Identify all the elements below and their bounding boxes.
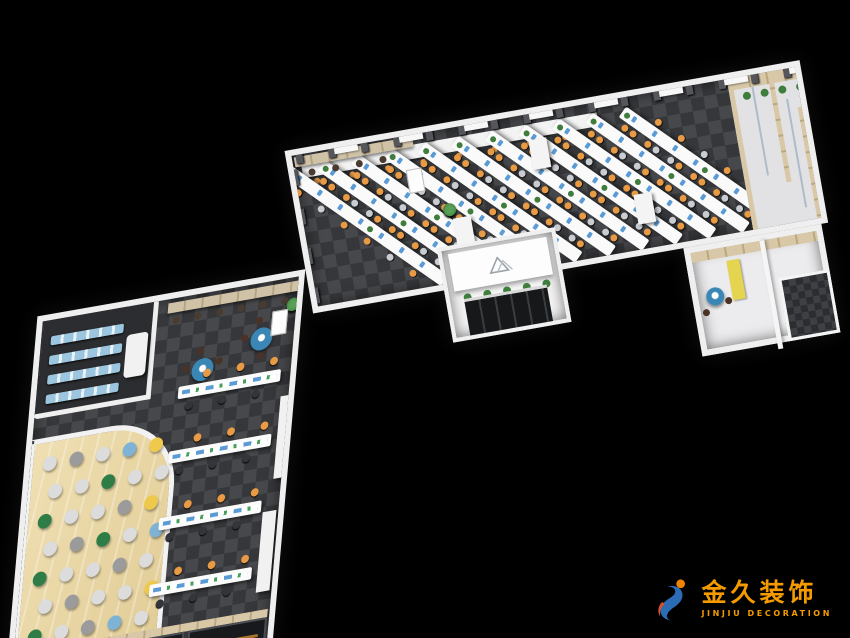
office-chair-icon — [498, 185, 508, 195]
plant-icon — [701, 166, 709, 174]
meeting-table — [195, 634, 258, 638]
office-chair-icon — [293, 188, 303, 198]
office-chair-icon — [193, 433, 202, 443]
monitor-icon — [497, 139, 504, 146]
monitor-icon — [672, 145, 679, 152]
plant-icon — [742, 91, 751, 100]
chair-icon — [725, 297, 733, 305]
entrance-lobby — [437, 227, 572, 342]
office-chair-icon — [442, 175, 452, 185]
chair-icon — [175, 465, 184, 475]
chair-icon — [189, 593, 198, 603]
office-chair-icon — [408, 268, 418, 278]
break-table — [705, 286, 726, 307]
monitor-icon — [612, 191, 619, 198]
office-chair-icon — [342, 193, 352, 203]
office-building-plan — [120, 58, 850, 638]
monitor-icon — [571, 162, 578, 169]
facade-panel — [463, 116, 489, 131]
office-chair-icon — [339, 220, 349, 230]
training-seat-row — [50, 323, 124, 345]
monitor-icon — [666, 199, 673, 206]
monitor-icon — [424, 206, 431, 213]
chair-icon — [241, 334, 249, 342]
desk-row — [168, 434, 272, 464]
monitor-icon — [450, 166, 457, 173]
office-chair-icon — [465, 191, 475, 201]
monitor-icon — [733, 188, 740, 195]
bar-stool-icon — [194, 312, 202, 320]
monitor-icon — [692, 159, 699, 166]
office-chair-icon — [236, 362, 245, 372]
glass-partition — [751, 87, 769, 176]
office-chair-icon — [250, 488, 259, 498]
monitor-icon — [504, 174, 511, 181]
office-chair-icon — [609, 145, 619, 155]
monitor-icon — [378, 232, 385, 239]
office-chair-icon — [599, 167, 609, 177]
office-chair-icon — [432, 197, 442, 207]
monitor-icon — [391, 212, 398, 219]
bar-stool-icon — [216, 308, 224, 316]
office-chair-icon — [712, 188, 722, 198]
office-chair-icon — [576, 151, 586, 161]
utility-room — [778, 269, 840, 341]
facade-column — [297, 209, 307, 226]
chair-icon — [199, 526, 208, 536]
office-chair-icon — [319, 177, 329, 187]
monitor-icon — [357, 218, 364, 225]
plant-icon — [455, 141, 463, 149]
facade-beam — [7, 350, 43, 359]
fridge-icon — [270, 309, 288, 337]
plant-icon — [522, 129, 530, 137]
office-chair-icon — [386, 165, 396, 175]
monitor-icon — [625, 171, 632, 178]
monitor-icon — [316, 189, 323, 196]
office-chair-icon — [398, 203, 408, 213]
facade-column — [424, 124, 434, 141]
office-chair-icon — [217, 493, 226, 503]
plant-icon — [795, 82, 804, 91]
office-chair-icon — [521, 201, 531, 211]
facade-column — [294, 147, 304, 164]
bar-stool-icon — [238, 304, 246, 312]
office-chair-icon — [476, 169, 486, 179]
monitor-icon — [337, 204, 344, 211]
office-chair-icon — [735, 204, 745, 214]
monitor-icon — [551, 148, 558, 155]
office-chair-icon — [270, 356, 279, 366]
facade-column — [749, 67, 759, 84]
facade-beam — [4, 441, 34, 450]
monitor-icon — [363, 163, 370, 170]
monitor-icon — [445, 220, 452, 227]
monitor-icon — [419, 261, 426, 268]
facade-panel — [658, 82, 684, 97]
lounge-bar-counter — [168, 281, 299, 314]
plant-icon — [589, 117, 597, 125]
office-chair-icon — [385, 252, 395, 262]
monitor-icon — [437, 186, 444, 193]
meeting-rooms — [727, 65, 828, 242]
monitor-icon — [679, 179, 686, 186]
plant-icon — [778, 85, 787, 94]
office-chair-icon — [587, 129, 597, 139]
office-chair-icon — [260, 421, 269, 431]
training-seat-rows — [43, 302, 154, 322]
chair-icon — [256, 316, 264, 324]
bar-stool-icon — [173, 316, 181, 324]
monitor-icon — [599, 211, 606, 218]
facade-column — [684, 78, 694, 95]
plant-icon — [567, 190, 575, 198]
monitor-icon — [597, 122, 604, 129]
chair-icon — [218, 395, 227, 405]
partition-wall — [256, 510, 277, 593]
facade-panel — [788, 60, 814, 74]
plant-icon — [489, 135, 497, 143]
monitor-icon — [586, 231, 593, 238]
monitor-icon — [605, 156, 612, 163]
monitor-icon — [579, 197, 586, 204]
monitor-icon — [512, 209, 519, 216]
monitor-icon — [713, 173, 720, 180]
office-chair-icon — [316, 204, 326, 214]
podium — [123, 331, 148, 378]
chair-icon — [257, 352, 265, 360]
monitor-icon — [638, 150, 645, 157]
office-chair-icon — [352, 171, 362, 181]
office-chair-icon — [207, 560, 216, 570]
facade-column — [359, 136, 369, 153]
bar-stool-icon — [259, 300, 267, 308]
office-chair-icon — [444, 235, 454, 245]
plant-icon — [466, 207, 474, 215]
chair-icon — [165, 532, 174, 542]
chair-icon — [197, 347, 205, 355]
office-chair-icon — [632, 161, 642, 171]
monitor-icon — [411, 226, 418, 233]
facade-column — [489, 113, 499, 130]
facade-panel — [593, 93, 619, 108]
desk-row — [158, 500, 262, 530]
plant-icon — [388, 153, 396, 161]
office-chair-icon — [509, 163, 519, 173]
monitor-icon — [430, 151, 437, 158]
watermark-text: 金久装饰 JINJIU DECORATION — [701, 580, 832, 618]
inner-wall — [759, 240, 783, 349]
brand-name-en: JINJIU DECORATION — [701, 609, 832, 618]
facade-panel — [398, 128, 424, 143]
desk-equipment — [172, 438, 267, 459]
facade-beam — [5, 373, 41, 382]
facade-beam — [4, 418, 36, 427]
training-seat-row — [45, 382, 119, 404]
plant-icon — [600, 184, 608, 192]
plant-icon — [422, 147, 430, 155]
chair-icon — [702, 309, 710, 317]
brand-name-cn: 金久装饰 — [701, 580, 832, 606]
right-wing — [683, 224, 840, 357]
desk-equipment — [153, 572, 248, 593]
monitor-icon — [458, 200, 465, 207]
office-chair-icon — [227, 427, 236, 437]
plant-icon — [399, 219, 407, 227]
training-seat-row — [47, 363, 121, 385]
facade-column — [554, 101, 564, 118]
office-chair-icon — [578, 211, 588, 221]
office-chair-icon — [174, 566, 183, 576]
monitor-icon — [545, 203, 552, 210]
monitor-icon — [631, 116, 638, 123]
training-seat-row — [49, 343, 123, 365]
chair-icon — [184, 401, 193, 411]
mountain-logo-icon — [486, 253, 515, 275]
monitor-icon — [463, 145, 470, 152]
plant-icon — [366, 225, 374, 233]
chair-icon — [232, 520, 241, 530]
office-chair-icon — [511, 223, 521, 233]
monitor-icon — [687, 214, 694, 221]
monitor-icon — [659, 165, 666, 172]
glass-partition — [786, 99, 807, 208]
lounge-table — [250, 326, 274, 353]
office-chair-icon — [183, 499, 192, 509]
office-chair-icon — [567, 233, 577, 243]
chair-icon — [242, 454, 251, 464]
company-watermark: 金久装饰 JINJIU DECORATION — [655, 576, 832, 622]
plant-icon — [623, 112, 631, 120]
partition-wall — [769, 83, 791, 182]
office-chair-icon — [488, 207, 498, 217]
render-canvas: 金久装饰 JINJIU DECORATION — [0, 0, 850, 638]
office-chair-icon — [701, 210, 711, 220]
facade-column — [311, 287, 321, 304]
lower-wing — [4, 269, 305, 638]
office-chair-icon — [410, 241, 420, 251]
monitor-icon — [566, 217, 573, 224]
office-chair-icon — [362, 236, 372, 246]
monitor-icon — [370, 198, 377, 205]
monitor-icon — [538, 168, 545, 175]
yellow-accent-wall — [726, 259, 746, 301]
plant-icon — [760, 88, 769, 97]
plant-icon — [433, 213, 441, 221]
office-chair-icon — [532, 179, 542, 189]
monitor-icon — [618, 136, 625, 143]
office-chair-icon — [676, 134, 686, 144]
office-chair-icon — [668, 216, 678, 226]
monitor-icon — [517, 154, 524, 161]
monitor-icon — [525, 188, 532, 195]
office-chair-icon — [565, 173, 575, 183]
office-chair-icon — [722, 166, 732, 176]
office-chair-icon — [689, 172, 699, 182]
office-chair-icon — [588, 189, 598, 199]
monitor-icon — [720, 208, 727, 215]
plant-icon — [667, 172, 675, 180]
monitor-icon — [564, 128, 571, 135]
office-chair-icon — [699, 150, 709, 160]
monitor-icon — [620, 226, 627, 233]
plant-icon — [533, 196, 541, 204]
office-chair-icon — [643, 139, 653, 149]
chair-icon — [251, 389, 260, 399]
plant-icon — [634, 178, 642, 186]
office-chair-icon — [477, 229, 487, 239]
office-chair-icon — [375, 187, 385, 197]
office-chair-icon — [622, 183, 632, 193]
monitor-icon — [558, 182, 565, 189]
office-chair-icon — [654, 117, 664, 127]
desk-equipment — [163, 505, 258, 526]
chair-icon — [208, 459, 217, 469]
office-chair-icon — [365, 209, 375, 219]
chair-icon — [215, 357, 223, 365]
office-chair-icon — [678, 194, 688, 204]
monitor-icon — [584, 142, 591, 149]
monitor-icon — [700, 193, 707, 200]
chair-icon — [222, 587, 231, 597]
plant-icon — [556, 123, 564, 131]
office-chair-icon — [655, 177, 665, 187]
monitor-icon — [398, 247, 405, 254]
monitor-icon — [350, 183, 357, 190]
plant-icon — [322, 165, 330, 173]
office-chair-icon — [421, 219, 431, 229]
facade-beam — [9, 327, 45, 336]
office-chair-icon — [387, 225, 397, 235]
office-chair-icon — [555, 195, 565, 205]
monitor-icon — [478, 215, 485, 222]
partition-wall — [273, 394, 294, 479]
office-chair-icon — [203, 368, 212, 378]
facade-column — [619, 90, 629, 107]
monitor-icon — [396, 157, 403, 164]
office-chair-icon — [601, 227, 611, 237]
partition-wall — [798, 106, 825, 230]
office-chair-icon — [544, 217, 554, 227]
training-room — [34, 301, 159, 419]
jinjiu-logo-icon — [655, 576, 693, 622]
office-chair-icon — [666, 156, 676, 166]
office-chair-icon — [620, 123, 630, 133]
facade-column — [304, 248, 314, 265]
monitor-icon — [651, 130, 658, 137]
office-chair-icon — [241, 554, 250, 564]
monitor-icon — [471, 180, 478, 187]
facade-panel — [528, 105, 554, 120]
office-chair-icon — [611, 205, 621, 215]
plant-icon — [500, 201, 508, 209]
chair-icon — [182, 365, 190, 373]
monitor-icon — [592, 177, 599, 184]
facade-beam — [4, 395, 38, 404]
monitor-icon — [491, 194, 498, 201]
monitor-icon — [484, 160, 491, 167]
monitor-icon — [383, 177, 390, 184]
